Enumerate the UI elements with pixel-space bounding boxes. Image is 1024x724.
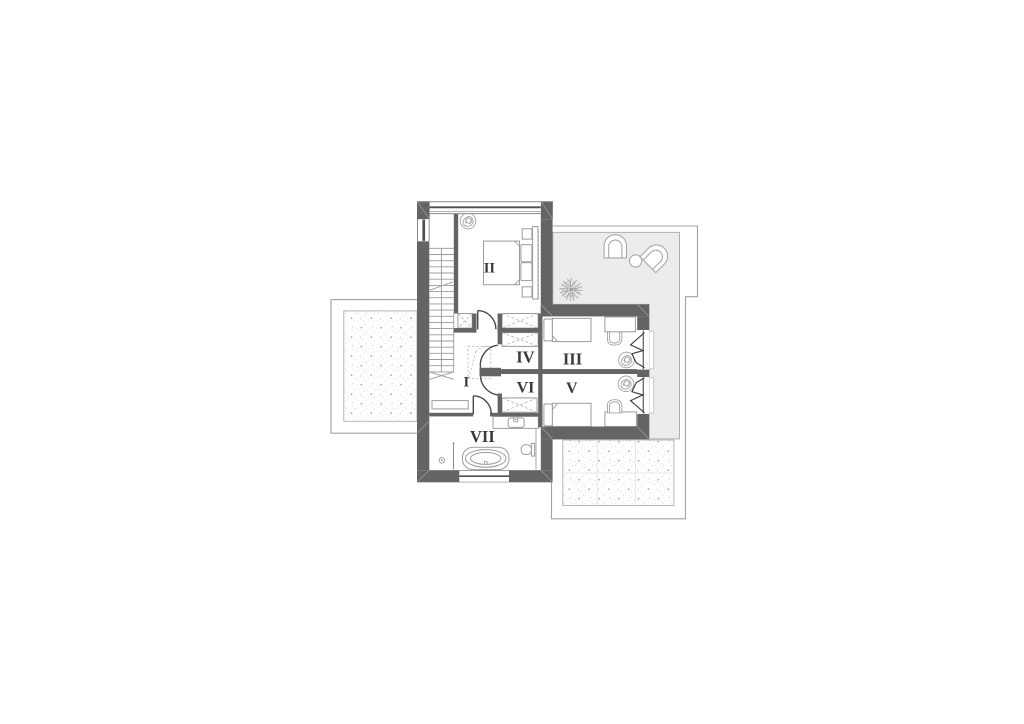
svg-text:III: III [563,349,582,368]
svg-text:I: I [463,375,469,391]
svg-text:II: II [484,260,496,276]
svg-text:IV: IV [516,348,534,367]
svg-text:V: V [566,380,578,397]
svg-text:VII: VII [470,427,495,446]
svg-text:VI: VI [517,379,535,396]
